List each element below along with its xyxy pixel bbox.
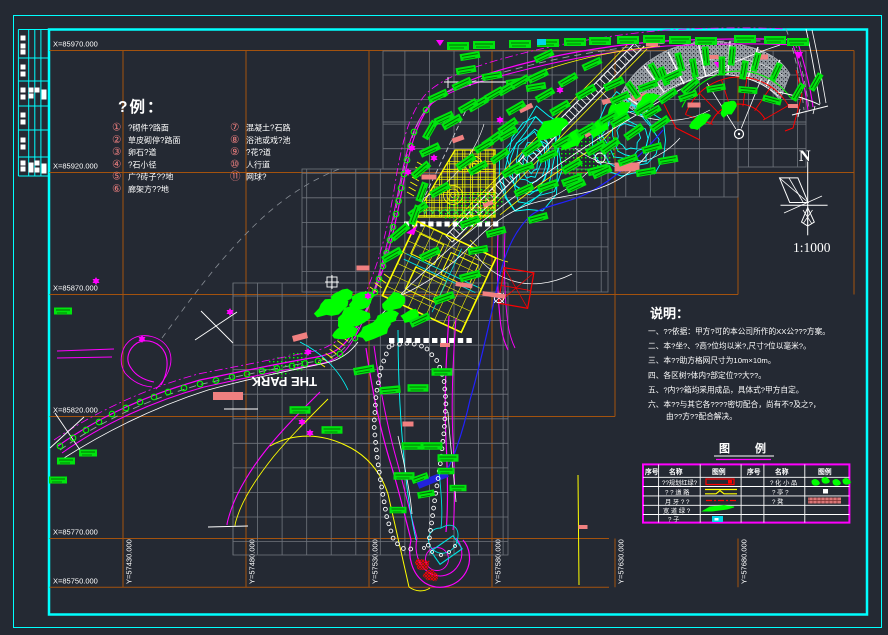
svg-text:? 亭 ?: ? 亭 ? bbox=[772, 489, 789, 497]
svg-text:1:1000: 1:1000 bbox=[793, 240, 831, 255]
svg-text:?花?道: ?花?道 bbox=[246, 147, 271, 157]
svg-text:宽 道 绿 ?: 宽 道 绿 ? bbox=[663, 507, 691, 515]
svg-text:?砌件?路面: ?砌件?路面 bbox=[128, 123, 169, 133]
svg-text:人行道: 人行道 bbox=[246, 159, 270, 169]
svg-text:X=85870.000: X=85870.000 bbox=[53, 284, 98, 293]
svg-text:X=85970.000: X=85970.000 bbox=[53, 40, 98, 49]
svg-text:序号: 序号 bbox=[645, 467, 659, 476]
svg-text:由??方??配合解决。: 由??方??配合解决。 bbox=[666, 411, 737, 421]
svg-text:??规划红绿?: ??规划红绿? bbox=[662, 479, 698, 487]
svg-text:? 凳: ? 凳 bbox=[772, 498, 783, 506]
svg-text:混凝土?石路: 混凝土?石路 bbox=[246, 123, 290, 133]
svg-text:卵石?道: 卵石?道 bbox=[128, 147, 156, 157]
svg-text:X=85750.000: X=85750.000 bbox=[53, 576, 98, 585]
svg-text:例: 例 bbox=[755, 441, 766, 455]
svg-text:六、本??与其它各????密切配合，尚有不?及之?，: 六、本??与其它各????密切配合，尚有不?及之?， bbox=[648, 399, 821, 409]
svg-text:X=85820.000: X=85820.000 bbox=[53, 406, 98, 415]
svg-text:? 化 小 品: ? 化 小 品 bbox=[770, 479, 797, 487]
svg-text:二、本?坐?、?高?位均以米?,尺寸?位以毫米?。: 二、本?坐?、?高?位均以米?,尺寸?位以毫米?。 bbox=[648, 341, 811, 351]
svg-text:Y=57630.000: Y=57630.000 bbox=[617, 539, 626, 584]
svg-text:?例：: ?例： bbox=[118, 97, 164, 116]
svg-text:廊架方??地: 廊架方??地 bbox=[128, 184, 169, 194]
svg-text:三、本??助方格网尺寸为10m×10m。: 三、本??助方格网尺寸为10m×10m。 bbox=[648, 355, 776, 365]
svg-text:Y=57530.000: Y=57530.000 bbox=[371, 539, 380, 584]
svg-text:一、??依据：甲方?可的本公司所作的XX公???方案。: 一、??依据：甲方?可的本公司所作的XX公???方案。 bbox=[648, 326, 830, 336]
svg-text:X=85770.000: X=85770.000 bbox=[53, 528, 98, 537]
svg-text:⑧: ⑧ bbox=[230, 134, 240, 146]
svg-text:Y=57580.000: Y=57580.000 bbox=[494, 539, 503, 584]
svg-text:说明：: 说明： bbox=[650, 306, 689, 321]
svg-text:Y=57680.000: Y=57680.000 bbox=[740, 539, 749, 584]
svg-text:广?砖子??地: 广?砖子??地 bbox=[128, 172, 173, 182]
svg-text:⑩: ⑩ bbox=[230, 158, 240, 170]
svg-text:名称: 名称 bbox=[775, 467, 789, 476]
svg-text:②: ② bbox=[112, 134, 122, 146]
svg-text:⑨: ⑨ bbox=[230, 146, 240, 158]
svg-text:③: ③ bbox=[112, 146, 122, 158]
svg-text:序号: 序号 bbox=[747, 467, 761, 476]
svg-text:④: ④ bbox=[112, 158, 122, 170]
svg-text:N: N bbox=[799, 148, 811, 165]
svg-text:草皮砌停?路面: 草皮砌停?路面 bbox=[128, 135, 180, 145]
svg-text:浴池或戏?池: 浴池或戏?池 bbox=[246, 135, 290, 145]
svg-text:月 牙 ? ?: 月 牙 ? ? bbox=[665, 499, 690, 506]
svg-text:五、?内??箱均采用成品，具体式?甲方自定。: 五、?内??箱均采用成品，具体式?甲方自定。 bbox=[648, 384, 803, 394]
svg-text:四、各区树?体内?部定位??大??。: 四、各区树?体内?部定位??大??。 bbox=[648, 370, 766, 380]
svg-text:名称: 名称 bbox=[669, 467, 683, 476]
svg-text:①: ① bbox=[112, 122, 122, 134]
svg-text:图例: 图例 bbox=[818, 467, 832, 476]
svg-text:网球?: 网球? bbox=[246, 172, 267, 182]
svg-text:X=85920.000: X=85920.000 bbox=[53, 162, 98, 171]
svg-text:Y=57430.000: Y=57430.000 bbox=[125, 539, 134, 584]
svg-text:? ? 道 路: ? ? 道 路 bbox=[665, 489, 690, 497]
svg-text:?石小径: ?石小径 bbox=[128, 159, 156, 169]
svg-text:⑪: ⑪ bbox=[230, 171, 241, 183]
svg-text:⑤: ⑤ bbox=[112, 171, 122, 183]
svg-text:⑦: ⑦ bbox=[230, 122, 240, 134]
svg-text:Y=57480.000: Y=57480.000 bbox=[248, 539, 257, 584]
svg-text:图: 图 bbox=[719, 442, 730, 455]
svg-text:⑥: ⑥ bbox=[112, 183, 122, 195]
svg-text:? 子: ? 子 bbox=[668, 517, 679, 524]
svg-text:THE PARK: THE PARK bbox=[251, 374, 317, 389]
svg-text:图例: 图例 bbox=[712, 467, 726, 476]
